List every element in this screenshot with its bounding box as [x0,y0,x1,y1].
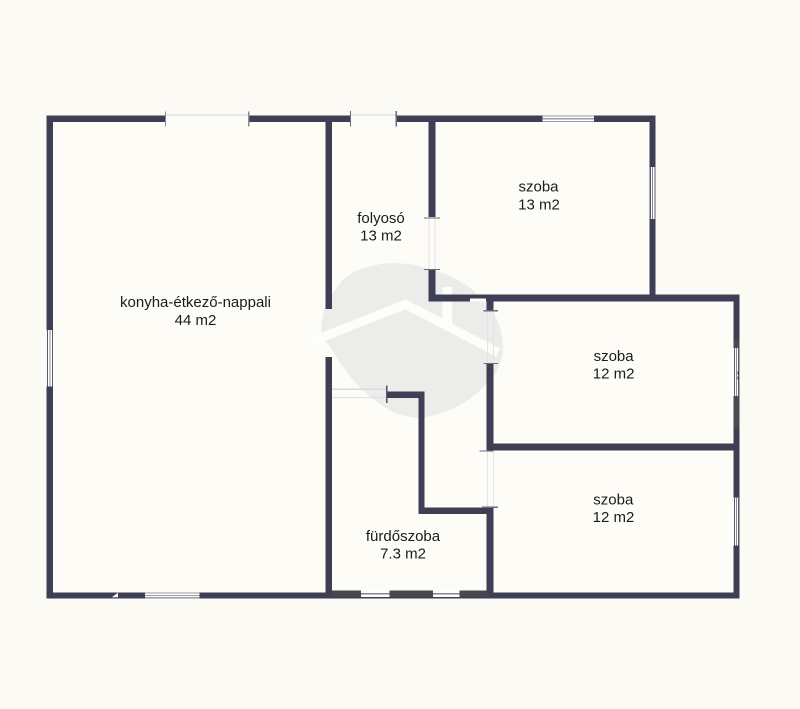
svg-text:44 m2: 44 m2 [175,312,217,329]
svg-text:fürdőszoba: fürdőszoba [366,528,441,545]
svg-text:konyha-étkező-nappali: konyha-étkező-nappali [120,294,271,311]
svg-text:szoba: szoba [518,179,559,196]
svg-text:7.3 m2: 7.3 m2 [380,546,426,563]
svg-text:12 m2: 12 m2 [593,366,635,383]
svg-text:szoba: szoba [593,492,634,509]
svg-text:folyosó: folyosó [357,210,405,227]
svg-text:12 m2: 12 m2 [593,509,635,526]
svg-text:13 m2: 13 m2 [360,228,402,245]
svg-text:13 m2: 13 m2 [518,197,560,214]
svg-text:szoba: szoba [594,348,635,365]
